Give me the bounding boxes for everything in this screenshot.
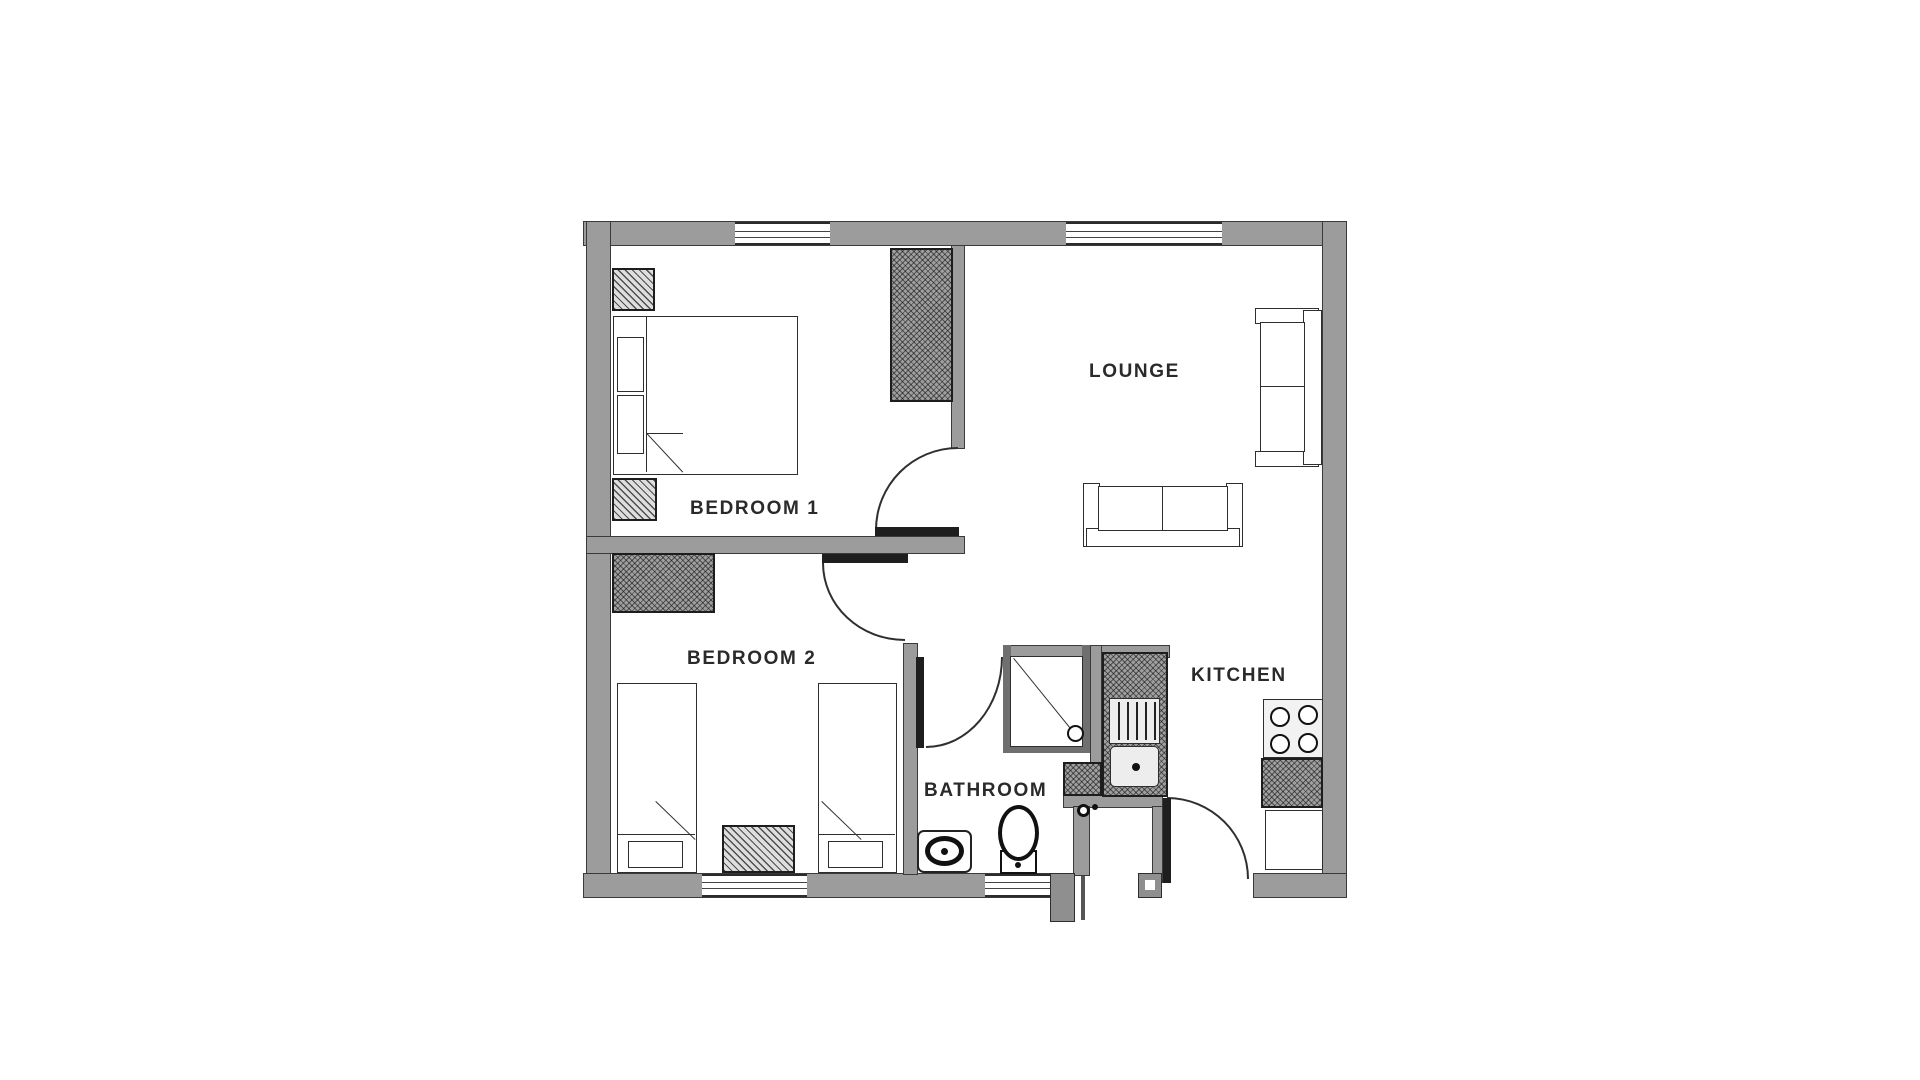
entrance-porch-block (1050, 873, 1075, 922)
window-pane-line (735, 231, 830, 232)
bed-pillow (628, 841, 683, 868)
door-leaf-kitchen (1163, 798, 1171, 883)
drainer-groove (1127, 702, 1129, 740)
single-bed (818, 683, 897, 873)
exterior-wall-right (1322, 221, 1347, 898)
window-pane-line (985, 882, 1050, 883)
room-label-lounge: LOUNGE (1089, 361, 1180, 383)
double-bed (613, 316, 798, 475)
sink-drain-dot (1132, 763, 1140, 771)
sofa-back (1303, 310, 1322, 465)
bed-headboard-line (646, 317, 647, 472)
bedside-table (612, 478, 657, 521)
entrance-stub-inset (1145, 880, 1155, 890)
door-leaf-entrance (1081, 876, 1085, 920)
window-pane-line (1066, 237, 1222, 238)
floor-plan: BEDROOM 1 BEDROOM 2 LOUNGE (0, 0, 1920, 1080)
wall-bedroom1-lounge (951, 245, 965, 449)
hob-4-burners (1263, 699, 1323, 758)
window-pane-line (702, 882, 807, 883)
door-swing-bedroom1 (875, 447, 958, 530)
door-swing-bedroom2 (822, 563, 905, 641)
window-bathroom (985, 874, 1050, 897)
window-bedroom2 (702, 874, 807, 897)
exterior-wall-bottom-right (1253, 873, 1347, 898)
sofa-cushion (1162, 486, 1228, 531)
kitchen-base-cabinet (1265, 810, 1323, 870)
shower-drain (1067, 725, 1084, 742)
burner (1270, 734, 1290, 754)
single-bed (617, 683, 697, 873)
sink-drainer (1109, 698, 1160, 744)
window-lounge (1066, 222, 1222, 245)
toilet-bowl (998, 805, 1039, 861)
bed-pillow (828, 841, 883, 868)
sofa-cushion (1098, 486, 1164, 531)
door-swing-bathroom (926, 657, 1003, 748)
door-leaf-bedroom1 (875, 527, 959, 536)
lobby-door-pivot (1077, 804, 1090, 817)
window-pane-line (1066, 231, 1222, 232)
drainer-groove (1154, 702, 1156, 740)
wall-bedrooms-hall (586, 536, 965, 554)
burner (1298, 705, 1318, 725)
wardrobe-bedroom1 (890, 248, 953, 402)
drainer-groove (1118, 702, 1120, 740)
toilet-flush-dot (1015, 862, 1021, 868)
room-label-kitchen: KITCHEN (1191, 665, 1287, 687)
drainer-groove (1136, 702, 1138, 740)
bathroom-lobby-ledge (1063, 762, 1102, 796)
bed-foot-line (618, 834, 695, 835)
wardrobe-bedroom2 (612, 553, 715, 613)
kitchen-counter-sink (1102, 652, 1168, 797)
drainer-groove (1145, 702, 1147, 740)
sofa (1083, 483, 1243, 549)
sink-bowl (1110, 746, 1159, 787)
bed-pillow (617, 395, 644, 454)
room-label-bedroom1: BEDROOM 1 (690, 498, 819, 520)
door-leaf-bathroom (916, 657, 924, 748)
burner (1270, 707, 1290, 727)
bedside-table (612, 268, 655, 311)
armchair-sofa (1255, 308, 1322, 467)
wall-lobby-east (1152, 806, 1163, 883)
room-label-bathroom: BATHROOM (924, 780, 1047, 802)
door-leaf-bedroom2 (822, 554, 908, 563)
sofa-cushion (1260, 322, 1305, 388)
exterior-wall-left (586, 221, 611, 898)
door-swing-kitchen (1167, 797, 1249, 879)
window-bedroom1 (735, 222, 830, 245)
shower-wall (1003, 746, 1090, 753)
bed-fold-edge (647, 433, 683, 434)
room-label-bedroom2: BEDROOM 2 (687, 648, 816, 670)
exterior-wall-bottom-left (583, 873, 1050, 898)
bed-pillow (617, 337, 644, 392)
basin-drain-dot (941, 848, 948, 855)
exterior-wall-top (583, 221, 1347, 246)
kitchen-counter-hob (1261, 758, 1323, 808)
window-pane-line (702, 888, 807, 889)
lobby-dot (1092, 804, 1098, 810)
burner (1298, 733, 1318, 753)
window-pane-line (735, 237, 830, 238)
sofa-cushion (1260, 386, 1305, 452)
window-pane-line (985, 888, 1050, 889)
rug (722, 825, 795, 873)
